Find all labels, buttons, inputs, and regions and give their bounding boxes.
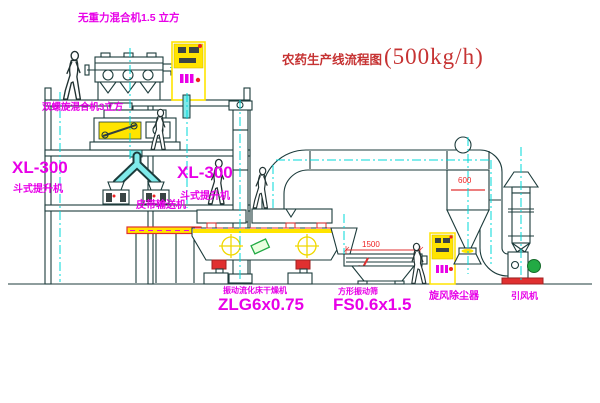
label-fan: 引风机 [511,292,538,301]
belt-conveyor-machine [127,227,201,283]
vibration-motor [296,260,310,269]
induced-draft-fan-machine [502,252,543,284]
label-dryer-model: ZLG6x0.75 [218,296,304,313]
red-indicator-light-icon [449,235,452,238]
label-elevator-left-type: 斗式提升机 [13,185,63,195]
worker-figure [253,167,267,208]
control-cabinet-upper [172,42,205,100]
dimension-line [344,246,423,254]
flow-diagram-canvas: 农药生产线流程图 (500kg/h) 无重力混合机1.5 立方 双螺旋混合机3立… [0,0,600,403]
red-indicator-light-icon [198,44,202,48]
label-screw-mixer: 双螺旋混合机3立方 [42,103,123,113]
diagram-title: 农药生产线流程图 (500kg/h) [282,44,484,70]
vibration-motor [212,260,226,269]
title-capacity: (500kg/h) [384,44,484,70]
label-gravity-mixer: 无重力混合机1.5 立方 [78,13,180,24]
dimension-cyclone-diameter: 600 [458,177,471,185]
label-cyclone: 旋风除尘器 [429,292,479,302]
worker-figure [64,51,81,99]
label-elevator-left-model: XL-300 [12,159,68,176]
fan-base [502,278,543,284]
label-elevator-right-model: XL-300 [177,164,233,181]
label-screen-model: FS0.6x1.5 [333,296,411,313]
label-dryer-type: 振动流化床干燥机 [223,287,287,295]
title-text: 农药生产线流程图 [282,49,382,68]
fluid-bed-dryer-machine [192,209,345,284]
label-elevator-right-type: 斗式提升机 [180,192,230,202]
control-cabinet-lower [430,233,455,284]
dimension-screen-length: 1500 [362,241,380,249]
fan-motor [528,260,541,273]
gravity-mixer-machine [85,53,182,100]
label-belt-conveyor: 皮带输送机 [136,201,186,211]
